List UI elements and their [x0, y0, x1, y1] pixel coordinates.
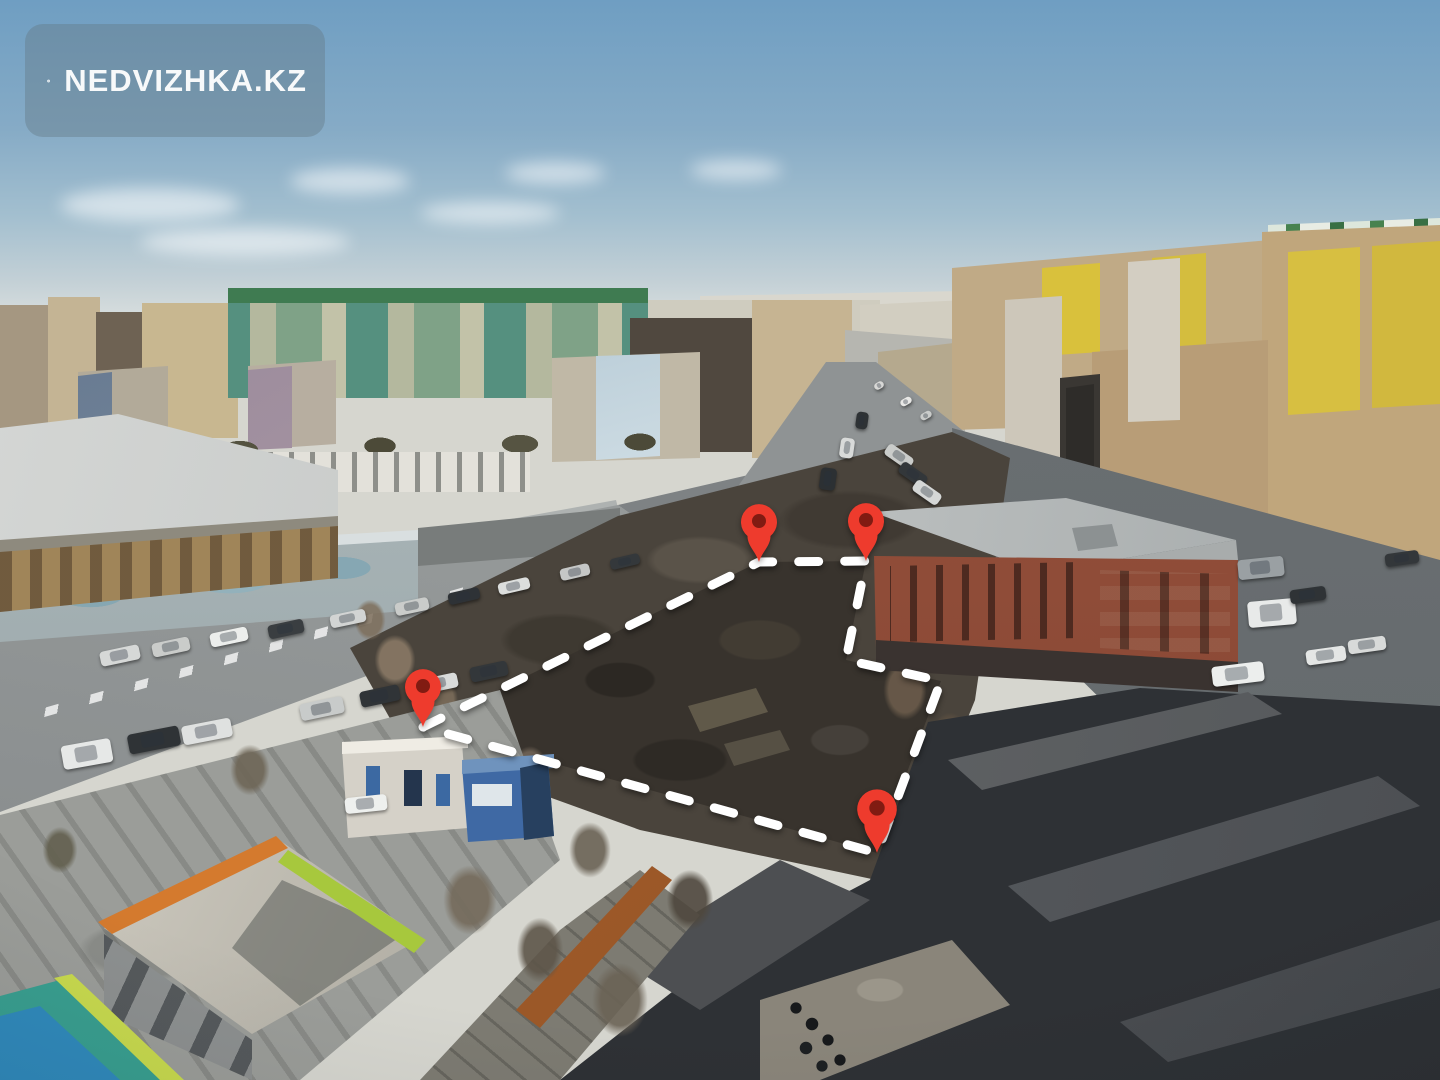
plot-boundary-overlay	[0, 0, 1440, 1080]
watermark: NEDVIZHKA.KZ	[25, 24, 325, 137]
aerial-photo: NEDVIZHKA.KZ	[0, 0, 1440, 1080]
location-pin-icon	[848, 503, 884, 561]
location-pin-icon	[857, 789, 897, 853]
brand-name: NEDVIZHKA.KZ	[64, 63, 307, 99]
house-icon	[47, 52, 50, 110]
location-pin-icon	[741, 504, 777, 562]
